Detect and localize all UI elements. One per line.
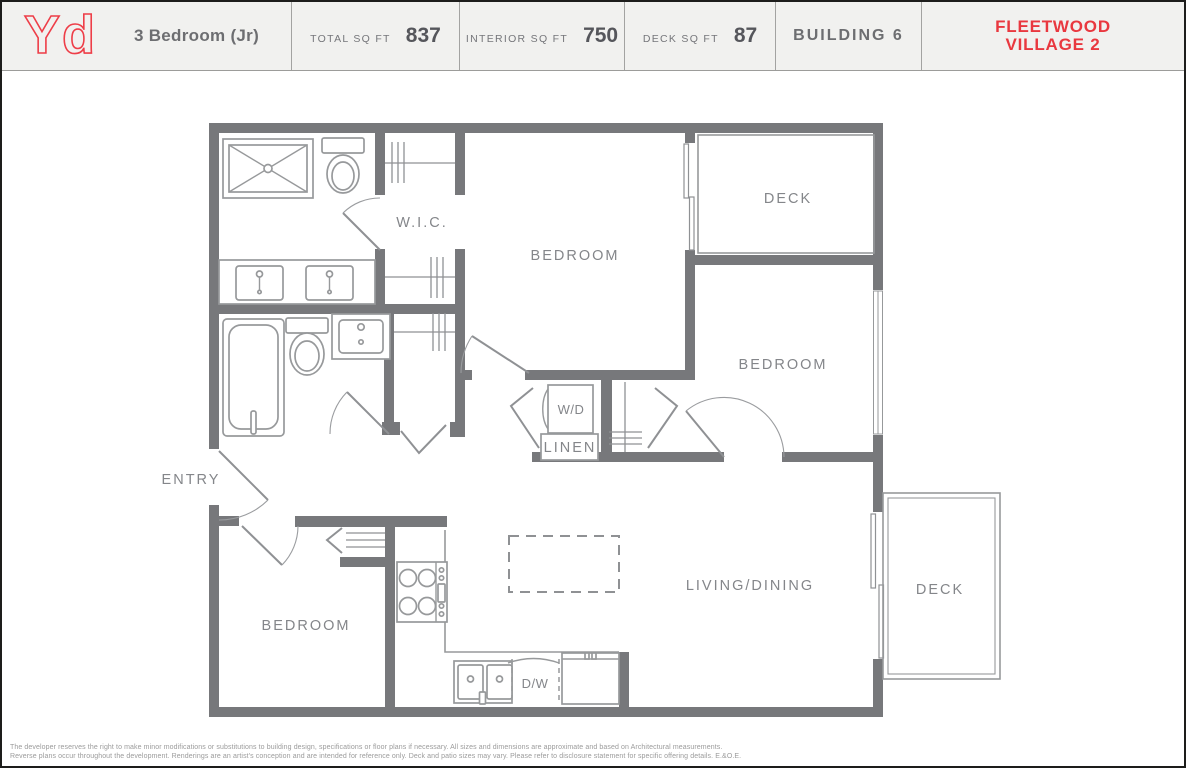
bedroom-left-closet-shelves bbox=[346, 533, 385, 547]
bedroom-right-window bbox=[873, 290, 884, 435]
wic-label: W.I.C. bbox=[396, 215, 447, 231]
yd-logo-text: Yd bbox=[24, 5, 97, 63]
deck-right-label: DECK bbox=[916, 582, 964, 598]
kitchen-sink-icon bbox=[454, 661, 512, 704]
disclaimer-line2: Reverse plans occur throughout the devel… bbox=[10, 752, 1176, 761]
fridge-icon bbox=[562, 653, 619, 704]
bedroom-left-closet-bifold bbox=[327, 528, 342, 553]
total-sqft-label: TOTAL SQ FT bbox=[310, 33, 391, 45]
header-bar: Yd 3 Bedroom (Jr) TOTAL SQ FT 837 INTERI… bbox=[2, 2, 1184, 71]
bedroom-deck-sliding-door bbox=[684, 143, 695, 250]
building-label: BUILDING 6 bbox=[793, 27, 904, 45]
bedroom-top-door bbox=[461, 336, 529, 373]
header-cell-plan: Yd 3 Bedroom (Jr) bbox=[2, 2, 292, 70]
wd-label: W/D bbox=[558, 402, 585, 417]
kitchen-island-dashed bbox=[509, 536, 619, 592]
entry-door bbox=[219, 451, 268, 520]
yd-logo: Yd bbox=[22, 5, 108, 68]
double-vanity-icon bbox=[219, 260, 375, 304]
wd-bifold-right bbox=[648, 388, 677, 448]
toilet-icon bbox=[286, 318, 328, 375]
brand-line1: FLEETWOOD bbox=[995, 18, 1111, 36]
interior-sqft-value: 750 bbox=[583, 24, 618, 48]
header-cell-building: BUILDING 6 bbox=[776, 2, 922, 70]
bedroom-left-door bbox=[242, 526, 298, 565]
floorplan-sheet: Yd 3 Bedroom (Jr) TOTAL SQ FT 837 INTERI… bbox=[0, 0, 1186, 768]
header-cell-brand: FLEETWOOD VILLAGE 2 bbox=[922, 2, 1184, 70]
linen-shelf-closet bbox=[609, 382, 642, 452]
deck-top-label: DECK bbox=[764, 191, 812, 207]
header-cell-interior-sqft: INTERIOR SQ FT 750 bbox=[460, 2, 625, 70]
disclaimer: The developer reserves the right to make… bbox=[10, 743, 1176, 761]
disclaimer-line1: The developer reserves the right to make… bbox=[10, 743, 1176, 752]
linen-label: LINEN bbox=[544, 440, 597, 456]
wic-rod-top bbox=[385, 142, 455, 183]
toilet-icon bbox=[322, 138, 364, 193]
bedroom-right-door bbox=[686, 397, 784, 457]
sink-icon bbox=[332, 314, 390, 359]
header-cell-total-sqft: TOTAL SQ FT 837 bbox=[292, 2, 460, 70]
bedroom-top-label: BEDROOM bbox=[531, 248, 620, 264]
bathtub-icon bbox=[223, 319, 284, 436]
stove-icon bbox=[397, 562, 447, 622]
plan-name: 3 Bedroom (Jr) bbox=[108, 26, 291, 46]
living-dining-label: LIVING/DINING bbox=[686, 578, 814, 594]
bathroom-door bbox=[330, 392, 389, 434]
hall-closet-rod bbox=[394, 313, 455, 351]
floorplan-drawing: W.I.C. BEDROOM DECK BEDROOM W/D LINEN EN… bbox=[2, 70, 1186, 742]
shower-icon bbox=[223, 139, 313, 198]
kitchen bbox=[397, 530, 619, 704]
ensuite-door bbox=[343, 198, 380, 250]
hall-closet-bifold bbox=[401, 425, 446, 453]
total-sqft-value: 837 bbox=[406, 24, 441, 48]
living-deck-sliding-door bbox=[871, 512, 884, 659]
entry-label: ENTRY bbox=[162, 472, 221, 488]
brand-logo: FLEETWOOD VILLAGE 2 bbox=[995, 18, 1111, 55]
wd-bifold-left bbox=[511, 388, 539, 448]
interior-sqft-label: INTERIOR SQ FT bbox=[466, 33, 568, 45]
wic-rod-bottom bbox=[385, 257, 455, 298]
deck-sqft-label: DECK SQ FT bbox=[643, 33, 719, 45]
brand-line2: VILLAGE 2 bbox=[995, 36, 1111, 54]
bedroom-left-label: BEDROOM bbox=[262, 618, 351, 634]
dishwasher-label: D/W bbox=[522, 676, 549, 691]
main-bathroom bbox=[223, 314, 390, 436]
deck-sqft-value: 87 bbox=[734, 24, 757, 48]
bedroom-right-label: BEDROOM bbox=[739, 357, 828, 373]
header-cell-deck-sqft: DECK SQ FT 87 bbox=[625, 2, 776, 70]
